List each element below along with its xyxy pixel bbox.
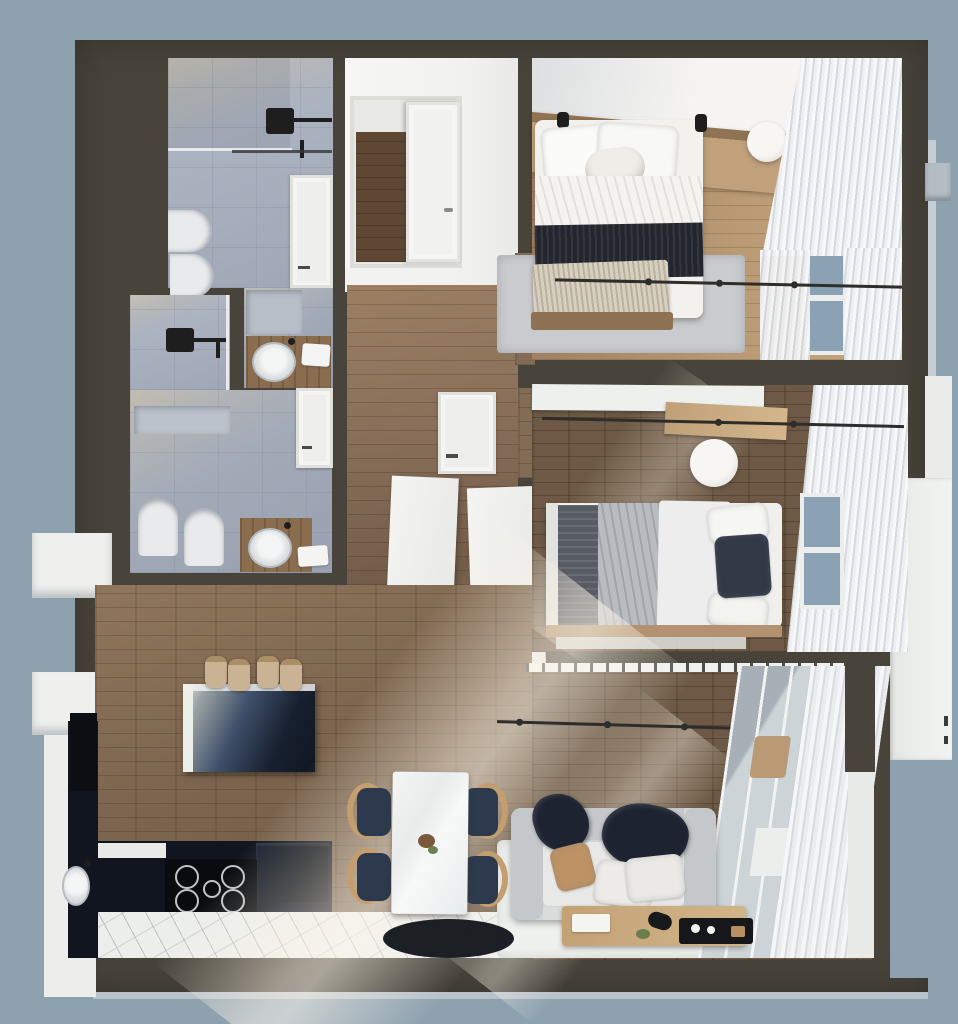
bathroom-door-open: [296, 388, 333, 468]
shower-valve: [216, 342, 220, 358]
book-stack: [572, 914, 610, 932]
bathroom-1-vanity-nook: [244, 288, 333, 388]
round-basin: [252, 342, 296, 382]
dining-chair: [461, 849, 508, 911]
chair-seat: [357, 853, 391, 901]
window: [805, 245, 847, 355]
coffee-table: [562, 906, 746, 946]
cup: [691, 924, 700, 933]
cup: [707, 926, 715, 934]
decor-object: [731, 926, 745, 937]
bar-stool: [280, 659, 302, 691]
kitchen-faucet: [84, 860, 91, 867]
door-handle: [298, 266, 310, 269]
burner: [175, 865, 199, 889]
dining-table: [391, 772, 468, 915]
kitchen-island: [183, 684, 315, 772]
window: [800, 493, 844, 609]
room-bathroom-2: [130, 390, 332, 573]
shower-glass-edge: [226, 295, 229, 390]
shower-floor: [168, 58, 290, 150]
chair-seat: [464, 788, 498, 836]
dining-chair: [347, 846, 394, 908]
centerpiece-plant: [428, 846, 438, 854]
room-bathroom-1: [168, 58, 333, 288]
floor-plan-scene: [0, 0, 958, 1024]
shower-valve: [300, 140, 304, 158]
facade-door-mark: [944, 736, 948, 744]
exterior-vent-box: [925, 163, 951, 201]
chair-seat: [464, 856, 498, 904]
sofa-arm: [684, 808, 716, 920]
bar-stool: [228, 659, 250, 691]
balcony-bench: [749, 736, 791, 778]
faucet: [288, 338, 295, 345]
rod-ring: [790, 421, 797, 428]
island-white-edge: [183, 684, 193, 772]
background-cut-right: [890, 760, 958, 978]
door-handle: [444, 208, 453, 212]
round-basin: [248, 528, 292, 568]
bar-stool: [205, 656, 227, 688]
bathroom-door-open: [290, 175, 333, 288]
decor-object: [646, 910, 674, 933]
toilet: [168, 210, 212, 252]
faucet: [284, 522, 291, 529]
window-mullion: [800, 547, 844, 553]
headboard-lamp: [557, 112, 569, 128]
headboard-lamp: [695, 114, 707, 132]
room-entry: [345, 58, 518, 288]
bar-stool: [257, 656, 279, 688]
towel: [301, 343, 330, 367]
glass-shelf: [232, 150, 332, 153]
bed-frame-foot: [531, 312, 673, 330]
white-pillow: [624, 853, 686, 903]
bedroom2-door-open: [438, 392, 496, 474]
bidet: [170, 254, 214, 298]
shower-arm: [192, 338, 226, 342]
mirror: [246, 290, 302, 334]
counter-white-edge: [98, 843, 166, 858]
room-master-bedroom: [532, 58, 902, 360]
rain-shower-head: [166, 328, 194, 352]
chair-seat: [357, 788, 391, 836]
kitchen-sink: [62, 866, 90, 906]
navy-pillow: [714, 533, 772, 599]
shower-arm: [292, 118, 332, 122]
toilet: [138, 498, 178, 556]
double-bed: [535, 120, 703, 374]
bathroom-2-shower: [130, 295, 230, 390]
serving-tray: [679, 918, 753, 944]
towel: [297, 545, 328, 567]
facade-band-upper: [925, 376, 952, 492]
balcony-wall-corner: [845, 666, 875, 772]
entry-door-leaf: [406, 102, 460, 262]
disc-pendant-lamp: [747, 122, 787, 162]
door-handle: [302, 446, 312, 449]
sheer-curtains-left: [760, 250, 810, 360]
plant: [636, 929, 650, 939]
dining-chair: [347, 781, 394, 843]
sheer-curtains-right: [844, 248, 902, 360]
cylinder-pendant-lamp: [690, 439, 738, 487]
bidet: [184, 508, 224, 566]
rain-shower-head: [266, 108, 294, 134]
facade-door-mark: [944, 716, 948, 726]
oval-rug: [383, 919, 514, 958]
door-handle: [446, 454, 458, 458]
mirror: [134, 406, 230, 434]
window-mullion: [805, 295, 847, 301]
built-in-appliance: [70, 713, 97, 791]
